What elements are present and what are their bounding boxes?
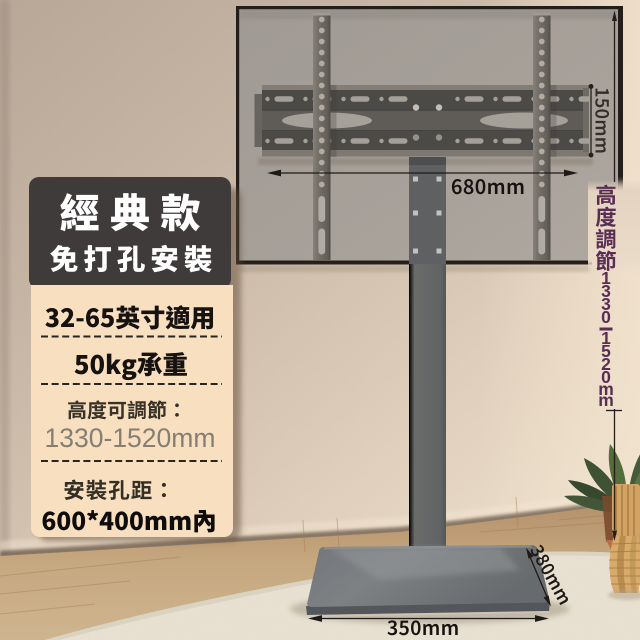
svg-text:0: 0 (601, 307, 611, 327)
svg-text:m: m (598, 390, 614, 410)
svg-text:1330-1520mm: 1330-1520mm (45, 423, 216, 453)
